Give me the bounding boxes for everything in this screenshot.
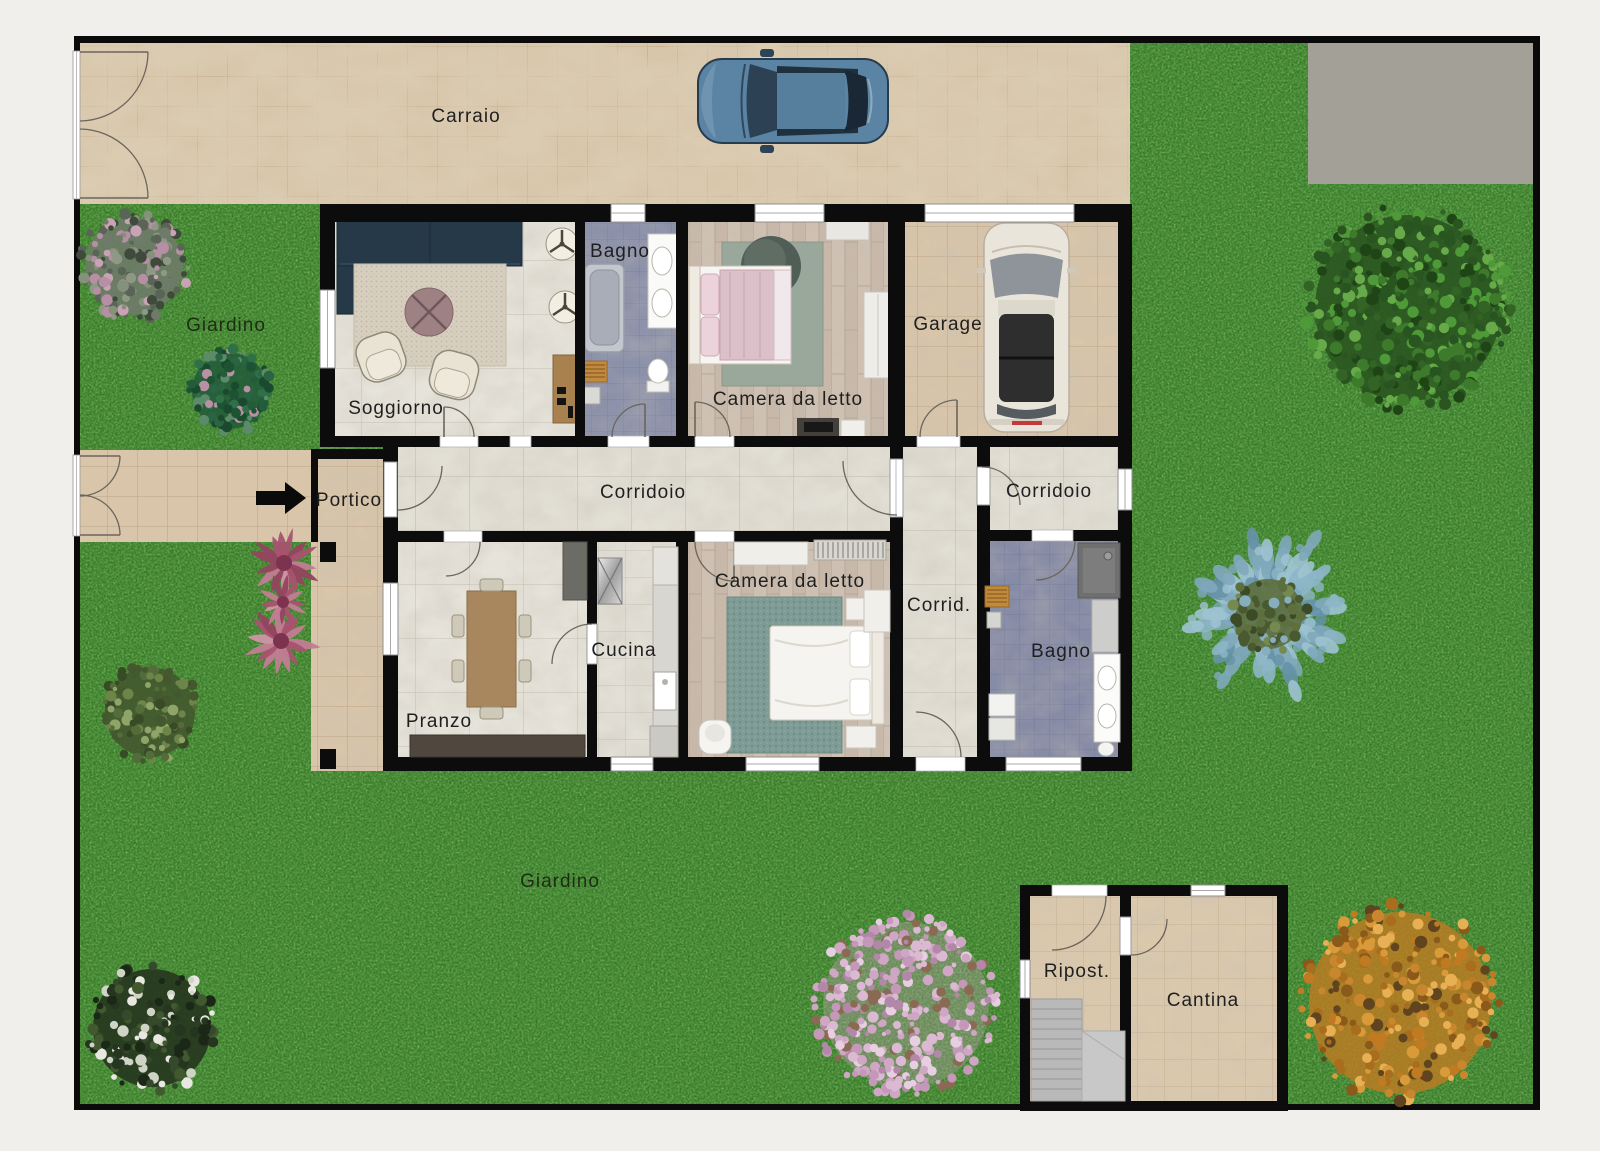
svg-text:Garage: Garage (913, 314, 982, 335)
svg-text:Cantina: Cantina (1167, 990, 1240, 1011)
svg-text:Camera da letto: Camera da letto (715, 571, 865, 592)
svg-text:Bagno: Bagno (1031, 641, 1091, 662)
svg-text:Cucina: Cucina (591, 640, 656, 661)
svg-text:Portico: Portico (316, 490, 382, 511)
svg-text:Camera da letto: Camera da letto (713, 389, 863, 410)
svg-text:Corridoio: Corridoio (1006, 481, 1092, 502)
svg-text:Soggiorno: Soggiorno (348, 398, 444, 419)
svg-text:Corrid.: Corrid. (907, 595, 971, 616)
svg-text:Carraio: Carraio (431, 106, 500, 127)
svg-text:Giardino: Giardino (520, 871, 600, 892)
svg-text:Ripost.: Ripost. (1044, 961, 1110, 982)
svg-text:Bagno: Bagno (590, 241, 650, 262)
svg-text:Corridoio: Corridoio (600, 482, 686, 503)
svg-text:Pranzo: Pranzo (406, 711, 472, 732)
svg-text:Giardino: Giardino (186, 315, 266, 336)
